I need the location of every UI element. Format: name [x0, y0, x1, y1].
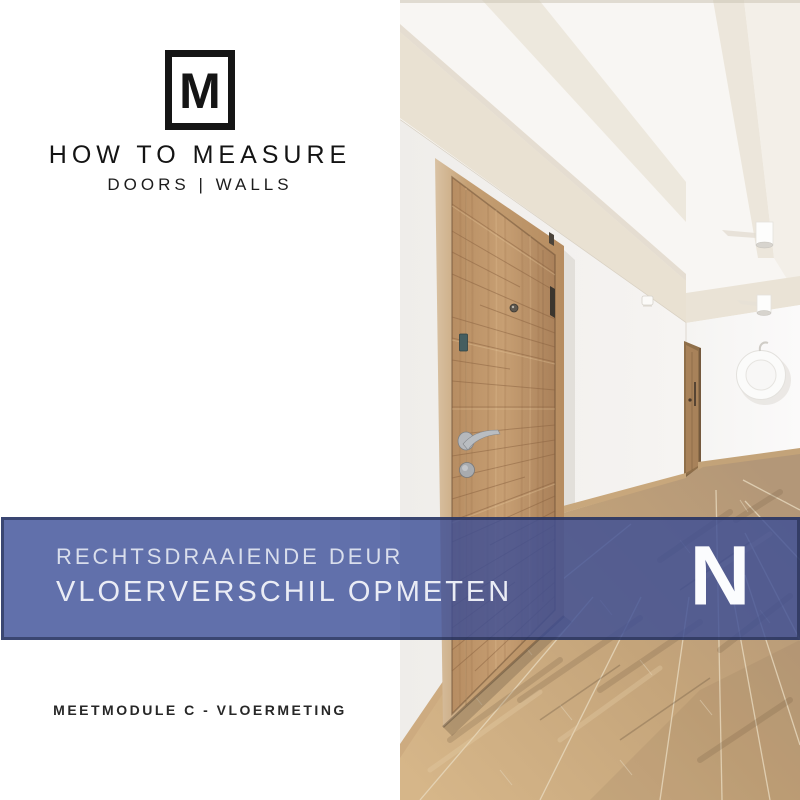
slide-canvas: M HOW TO MEASURE DOORS | WALLS MEETMODUL…: [0, 0, 800, 800]
peephole: [510, 304, 518, 312]
title-banner: RECHTSDRAAIENDE DEUR VLOERVERSCHIL OPMET…: [1, 517, 800, 640]
wall-sensor: [642, 296, 653, 306]
cylinder-lamp: [756, 222, 773, 245]
brand-title: HOW TO MEASURE: [0, 141, 400, 170]
logo-monogram: M: [179, 66, 221, 116]
left-panel: M HOW TO MEASURE DOORS | WALLS MEETMODUL…: [0, 0, 400, 800]
lock-edge-plate: [550, 286, 555, 318]
brand-logo: M: [165, 50, 235, 130]
module-label: MEETMODULE C - VLOERMETING: [0, 702, 400, 718]
chain-lock-plate: [460, 334, 468, 351]
banner-subtitle: RECHTSDRAAIENDE DEUR: [56, 544, 512, 570]
hallway-photo: [400, 0, 800, 800]
banner-text-block: RECHTSDRAAIENDE DEUR VLOERVERSCHIL OPMET…: [56, 544, 512, 609]
banner-title: VLOERVERSCHIL OPMETEN: [56, 576, 512, 609]
brand-subtitle: DOORS | WALLS: [0, 175, 400, 195]
module-letter-badge: N: [655, 533, 785, 617]
far-door: [684, 341, 701, 478]
